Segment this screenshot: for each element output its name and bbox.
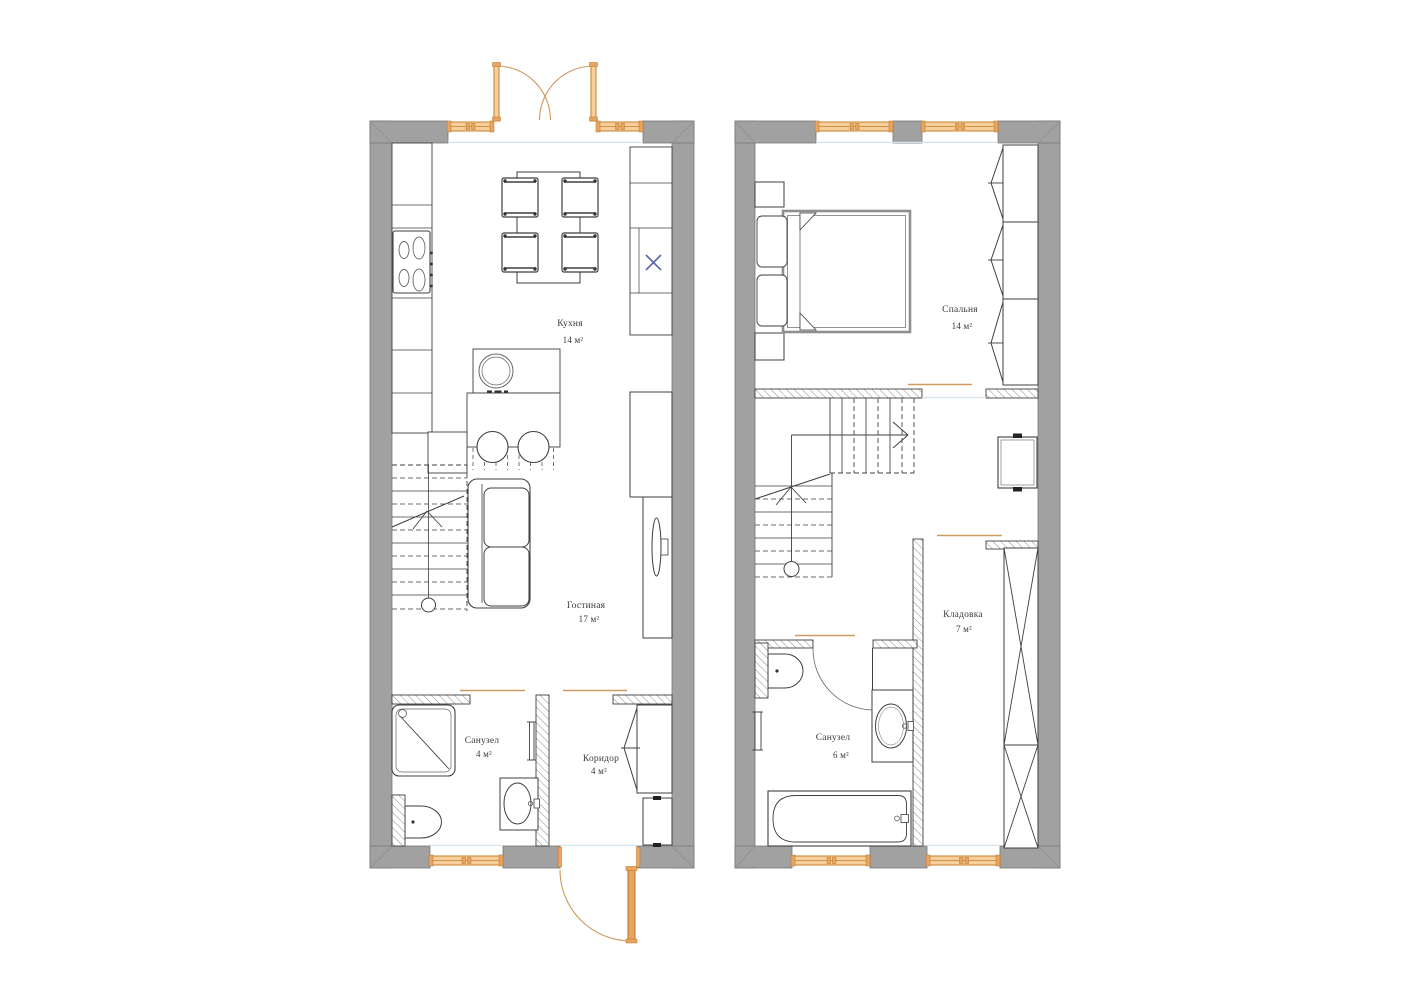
- kitchen-counter-right: [630, 147, 672, 335]
- room-area-bathroom1: 4 м²: [476, 749, 492, 759]
- floor2-window-bottom-right: [926, 855, 1000, 866]
- floor2-mid-partitions: [755, 385, 1038, 399]
- room-area-storage: 7 м²: [956, 624, 972, 634]
- room-label-corridor: Коридор: [583, 754, 619, 764]
- floor2-plan: Спальня 14 м² Кладовка 7 м² Санузел 6 м²: [735, 121, 1060, 868]
- floor2-window-bottom-left: [791, 855, 870, 866]
- room-area-kitchen: 14 м²: [563, 335, 584, 345]
- storage-wardrobe: [1004, 548, 1038, 848]
- chair: [502, 178, 538, 217]
- toilet-floor1: [392, 795, 442, 846]
- floor2-window-top-right: [921, 121, 998, 132]
- room-label-bedroom: Спальня: [942, 305, 978, 315]
- stove: [393, 231, 433, 293]
- floor1-window-top-left: [447, 121, 494, 132]
- chair: [502, 233, 538, 272]
- towel-radiator: [527, 722, 536, 760]
- pillow: [757, 216, 787, 267]
- room-label-bathroom1: Санузел: [465, 736, 500, 746]
- bar-stool: [477, 432, 508, 463]
- tv-screen: [652, 518, 661, 576]
- chair: [562, 178, 598, 217]
- kitchen-sink-counter: [473, 349, 560, 396]
- bar-stool: [518, 432, 549, 463]
- floor1-window-bottom: [429, 855, 503, 866]
- floor2-window-top-left: [815, 121, 893, 132]
- room-label-living: Гостиная: [567, 601, 606, 611]
- room-area-corridor: 4 м²: [591, 766, 607, 776]
- room-label-bathroom2: Санузел: [816, 733, 851, 743]
- room-area-living: 17 м²: [579, 614, 600, 624]
- hall-cabinet: [998, 434, 1037, 492]
- french-door-top: [493, 63, 598, 122]
- corridor-wardrobe: [621, 705, 672, 793]
- pillow: [757, 275, 787, 326]
- tv-unit: [630, 392, 672, 638]
- floor1-window-top-right: [596, 121, 643, 132]
- floorplan-canvas: Кухня 14 м² Гостиная 17 м² Санузел 4 м² …: [0, 0, 1413, 1000]
- bedroom-wardrobe: [988, 145, 1038, 385]
- nightstand: [755, 182, 784, 207]
- bed: [755, 182, 910, 360]
- sofa: [468, 479, 530, 608]
- bar-counter: [428, 393, 560, 473]
- bathroom1-sink: [500, 778, 540, 830]
- floorplan-page: Кухня 14 м² Гостиная 17 м² Санузел 4 м² …: [0, 0, 1413, 1000]
- room-area-bedroom: 14 м²: [952, 321, 973, 331]
- room-label-kitchen: Кухня: [557, 319, 583, 329]
- chair: [562, 233, 598, 272]
- toilet-floor2: [755, 643, 803, 698]
- staircase-floor2: [755, 398, 914, 577]
- bathroom2-door: [813, 648, 873, 710]
- floor1-plan: Кухня 14 м² Гостиная 17 м² Санузел 4 м² …: [370, 63, 694, 944]
- shower: [392, 705, 455, 776]
- room-area-bathroom2: 6 м²: [833, 750, 849, 760]
- bathtub: [768, 791, 911, 846]
- entrance-door: [558, 847, 640, 943]
- bathroom2-sink: [872, 690, 914, 762]
- nightstand: [755, 333, 784, 360]
- room-label-storage: Кладовка: [943, 610, 983, 620]
- staircase-floor1: [392, 465, 467, 612]
- shoe-cabinet: [643, 796, 672, 847]
